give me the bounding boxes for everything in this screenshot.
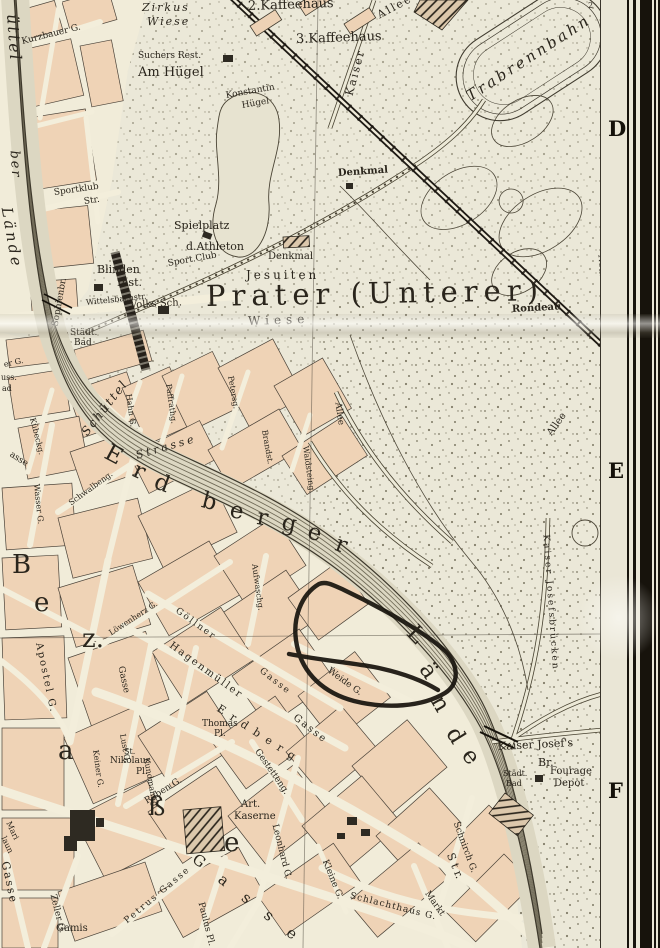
margin-letter: E	[608, 458, 624, 483]
margin-letter: D	[608, 116, 626, 141]
margin-strip: DEF	[600, 0, 660, 948]
frame-bar	[627, 0, 629, 948]
frame-bar	[654, 0, 656, 948]
frame-bar	[640, 0, 652, 948]
map-canvas: ZirkusWiese2.Kaffeehaus3.KaffeehausSuche…	[0, 0, 660, 948]
margin-letter: F	[608, 778, 623, 803]
frame-bar	[633, 0, 636, 948]
map-graphics	[0, 0, 660, 948]
